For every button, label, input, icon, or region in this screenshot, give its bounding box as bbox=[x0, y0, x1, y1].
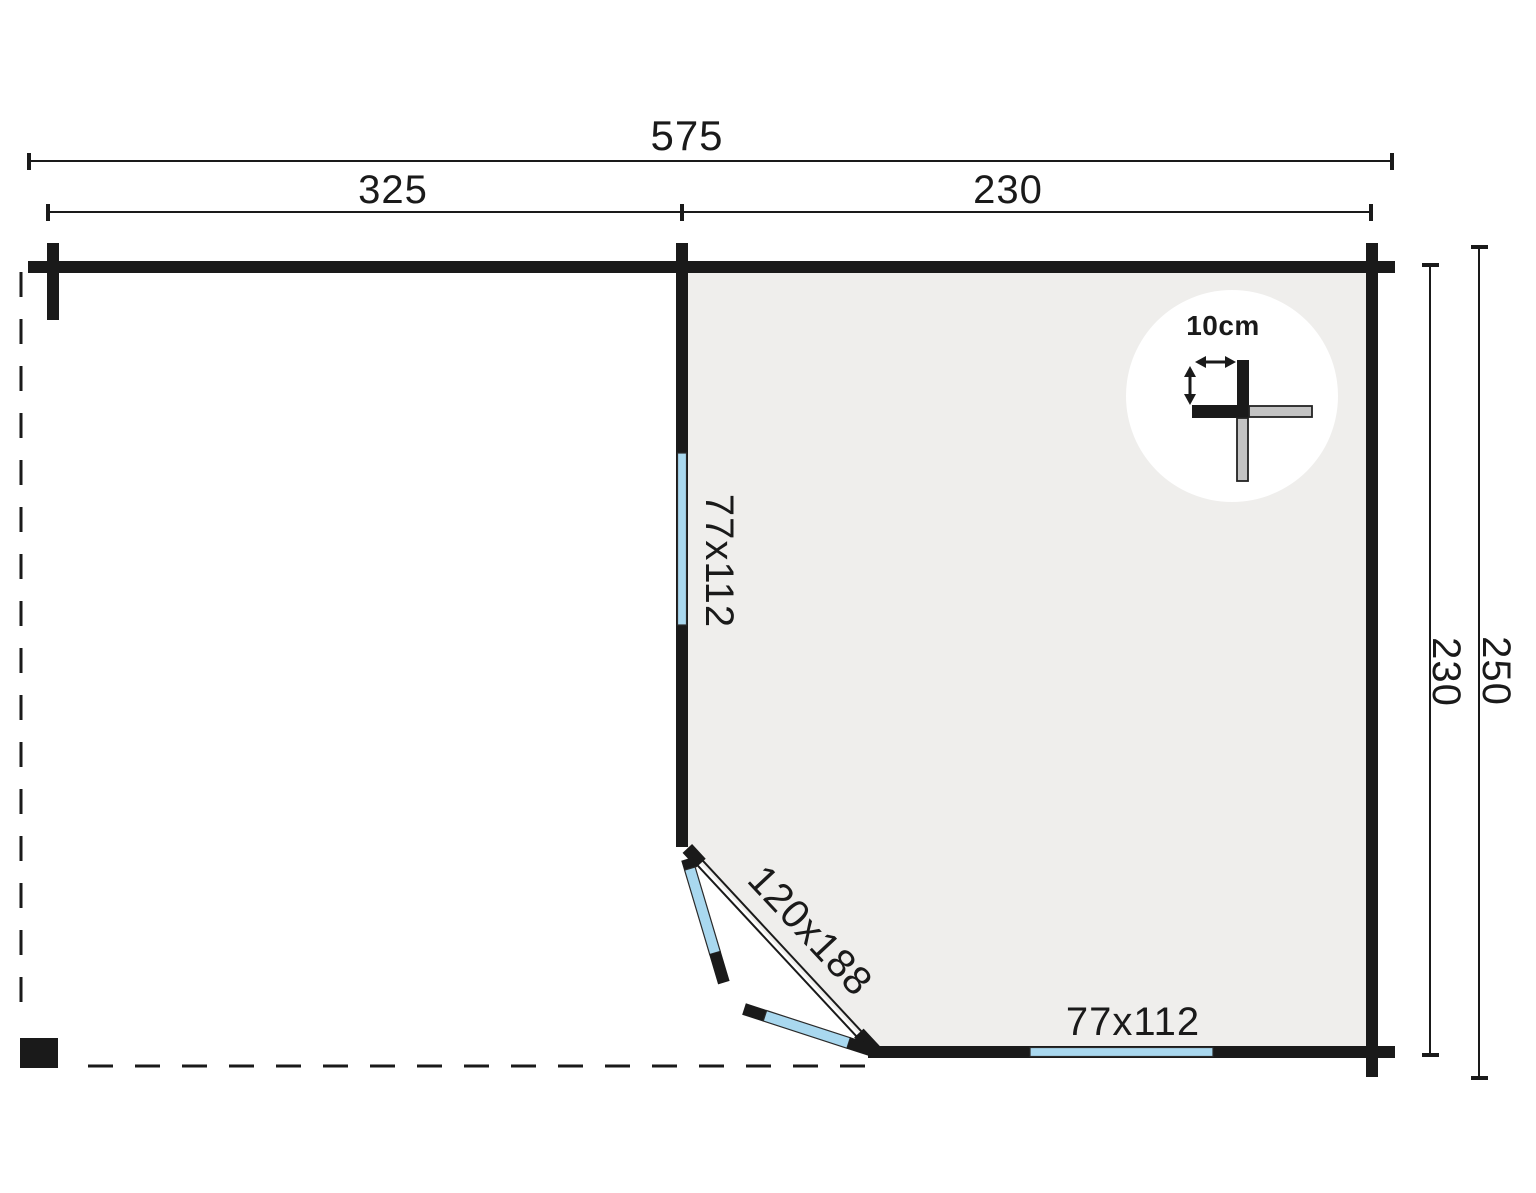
terrace-corner-post bbox=[20, 1038, 58, 1068]
dim-label-porch-width: 325 bbox=[358, 170, 428, 210]
cabin-right-wall bbox=[1366, 243, 1378, 1077]
bottom-window bbox=[1030, 1048, 1213, 1057]
detail-logend-right bbox=[1249, 406, 1312, 417]
dim-label-cabin-width: 230 bbox=[973, 170, 1043, 210]
dim-label-overall-depth: 250 bbox=[1476, 636, 1516, 706]
dimension-line-325-230 bbox=[46, 204, 1373, 221]
floorplan-canvas: 575 325 230 230 250 77x112 120x188 77x11… bbox=[0, 0, 1536, 1193]
bottom-window-size-label: 77x112 bbox=[1066, 1002, 1200, 1042]
front-wall-left-log bbox=[47, 243, 59, 320]
door-leaf-left-glass bbox=[685, 867, 721, 954]
detail-wall-vertical bbox=[1237, 360, 1249, 418]
dim-label-cabin-depth: 230 bbox=[1426, 637, 1466, 707]
left-window-size-label: 77x112 bbox=[699, 494, 739, 628]
dim-label-overall-width: 575 bbox=[650, 115, 723, 157]
door-leaf-right-cap-left bbox=[742, 1003, 767, 1021]
detail-logend-down bbox=[1237, 418, 1248, 481]
wall-thickness-label: 10cm bbox=[1186, 312, 1260, 340]
door-leaf-left-cap-bottom bbox=[709, 951, 729, 984]
floorplan-drawing bbox=[0, 0, 1536, 1193]
left-window bbox=[678, 453, 687, 625]
front-wall bbox=[28, 261, 1395, 273]
